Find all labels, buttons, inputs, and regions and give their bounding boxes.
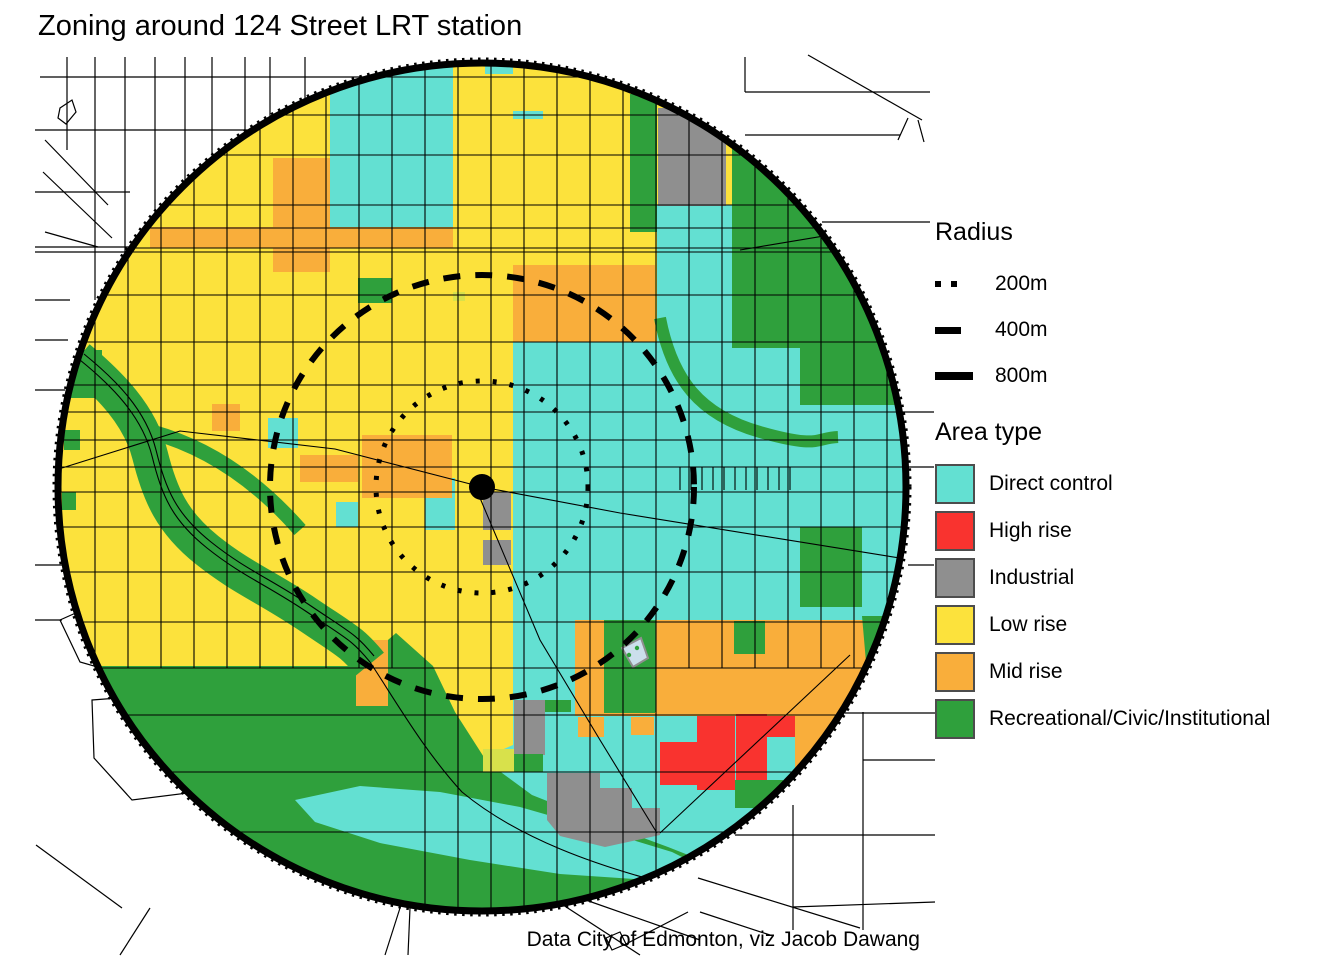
radius-label: 400m: [981, 318, 1048, 342]
recreational-cell-5: [545, 700, 571, 712]
legend-item-low-rise: Low rise: [935, 602, 1344, 648]
industrial-north-block: [658, 108, 726, 206]
data-credit-caption: Data City of Edmonton, viz Jacob Dawang: [527, 928, 920, 952]
mid-rise-central-block: [513, 265, 655, 342]
high-rise-block-1: [660, 742, 698, 785]
color-swatch-mid-rise: [935, 652, 975, 692]
area-label: Low rise: [975, 613, 1067, 637]
color-swatch-high-rise: [935, 511, 975, 551]
legend-item-industrial: Industrial: [935, 555, 1344, 601]
color-swatch-industrial: [935, 558, 975, 598]
area-label: Mid rise: [975, 660, 1063, 684]
area-label: Direct control: [975, 472, 1113, 496]
area-label: Industrial: [975, 566, 1074, 590]
mid-rise-parcel-5: [578, 717, 604, 737]
radius-label: 200m: [981, 272, 1048, 296]
recreational-east-block: [800, 527, 862, 607]
recreational-cell-6: [604, 700, 655, 713]
recreational-cell-7: [514, 754, 543, 772]
legend-item-mid-rise: Mid rise: [935, 649, 1344, 695]
color-swatch-direct-control: [935, 464, 975, 504]
dashed-line-sample: [935, 327, 981, 334]
radius-label: 800m: [981, 364, 1048, 388]
edge-green-2: [62, 492, 76, 510]
radius-legend: Radius 200m 400m 800m: [935, 218, 1335, 399]
screenshot-root: Zoning around 124 Street LRT station Rad…: [0, 0, 1344, 960]
high-rise-block-2: [697, 716, 735, 790]
legend-item-high-rise: High rise: [935, 508, 1344, 554]
area-label: Recreational/Civic/Institutional: [975, 707, 1270, 731]
color-swatch-recreational: [935, 699, 975, 739]
legend-item-direct-control: Direct control: [935, 461, 1344, 507]
legend-item-recreational: Recreational/Civic/Institutional: [935, 696, 1344, 742]
mid-rise-parcel-2: [300, 455, 358, 482]
lime-patch-south: [483, 749, 514, 772]
area-label: High rise: [975, 519, 1072, 543]
dotted-line-sample: [935, 281, 981, 287]
direct-control-parcel-3: [336, 502, 358, 527]
recreational-cell-1: [604, 620, 656, 712]
lime-patch: [453, 292, 465, 301]
page-title: Zoning around 124 Street LRT station: [38, 10, 522, 43]
area-type-legend: Area type Direct control High rise Indus…: [935, 418, 1344, 743]
radius-legend-title: Radius: [935, 218, 1335, 247]
solid-line-sample: [935, 372, 981, 380]
industrial-parcel-3: [514, 700, 545, 755]
mid-rise-column: [273, 158, 330, 272]
mid-rise-parcel-6: [631, 717, 654, 735]
legend-item-200m: 200m: [935, 261, 1335, 307]
legend-item-800m: 800m: [935, 353, 1335, 399]
recreational-cell-2: [734, 621, 765, 654]
color-swatch-low-rise: [935, 605, 975, 645]
legend-item-400m: 400m: [935, 307, 1335, 353]
area-type-legend-title: Area type: [935, 418, 1344, 447]
lrt-station-dot: [469, 474, 495, 500]
mid-rise-parcel-1: [212, 404, 240, 431]
